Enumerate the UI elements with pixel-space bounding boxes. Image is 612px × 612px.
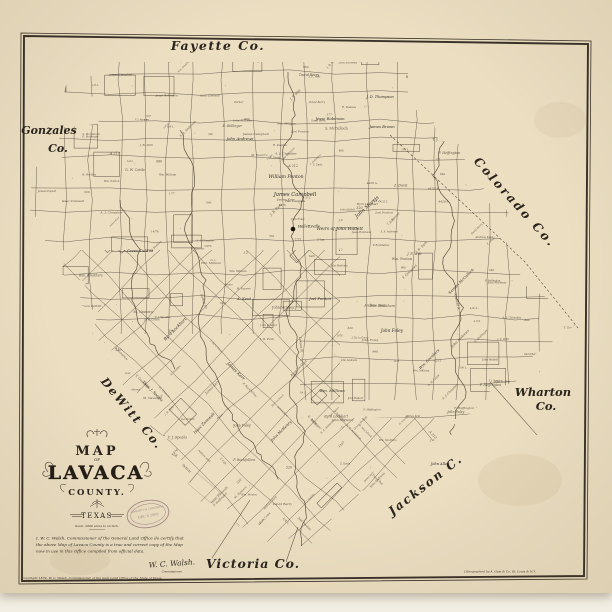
- page: { "map": { "title_block": { "map_word": …: [0, 0, 612, 612]
- map-sheet: John Hallett177John AndrewsWm. MillicanR…: [0, 0, 612, 593]
- vignette-overlay: [0, 0, 612, 593]
- lavaca-county-map: John Hallett177John AndrewsWm. MillicanR…: [0, 0, 612, 593]
